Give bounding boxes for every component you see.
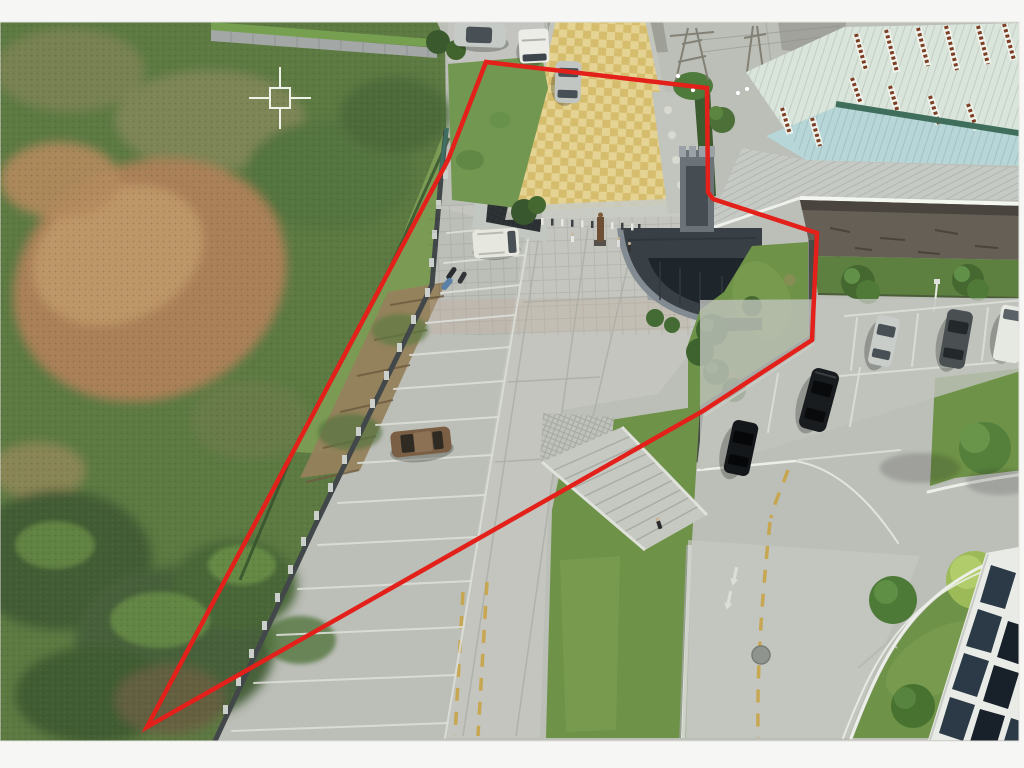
screenshot-canvas — [0, 0, 1024, 768]
statue — [597, 217, 604, 241]
old-stone-wall — [800, 200, 1024, 260]
suv-silver-top — [453, 22, 509, 53]
image-viewer — [0, 0, 1024, 768]
manhole — [752, 646, 770, 664]
aerial-photo — [0, 22, 1024, 762]
